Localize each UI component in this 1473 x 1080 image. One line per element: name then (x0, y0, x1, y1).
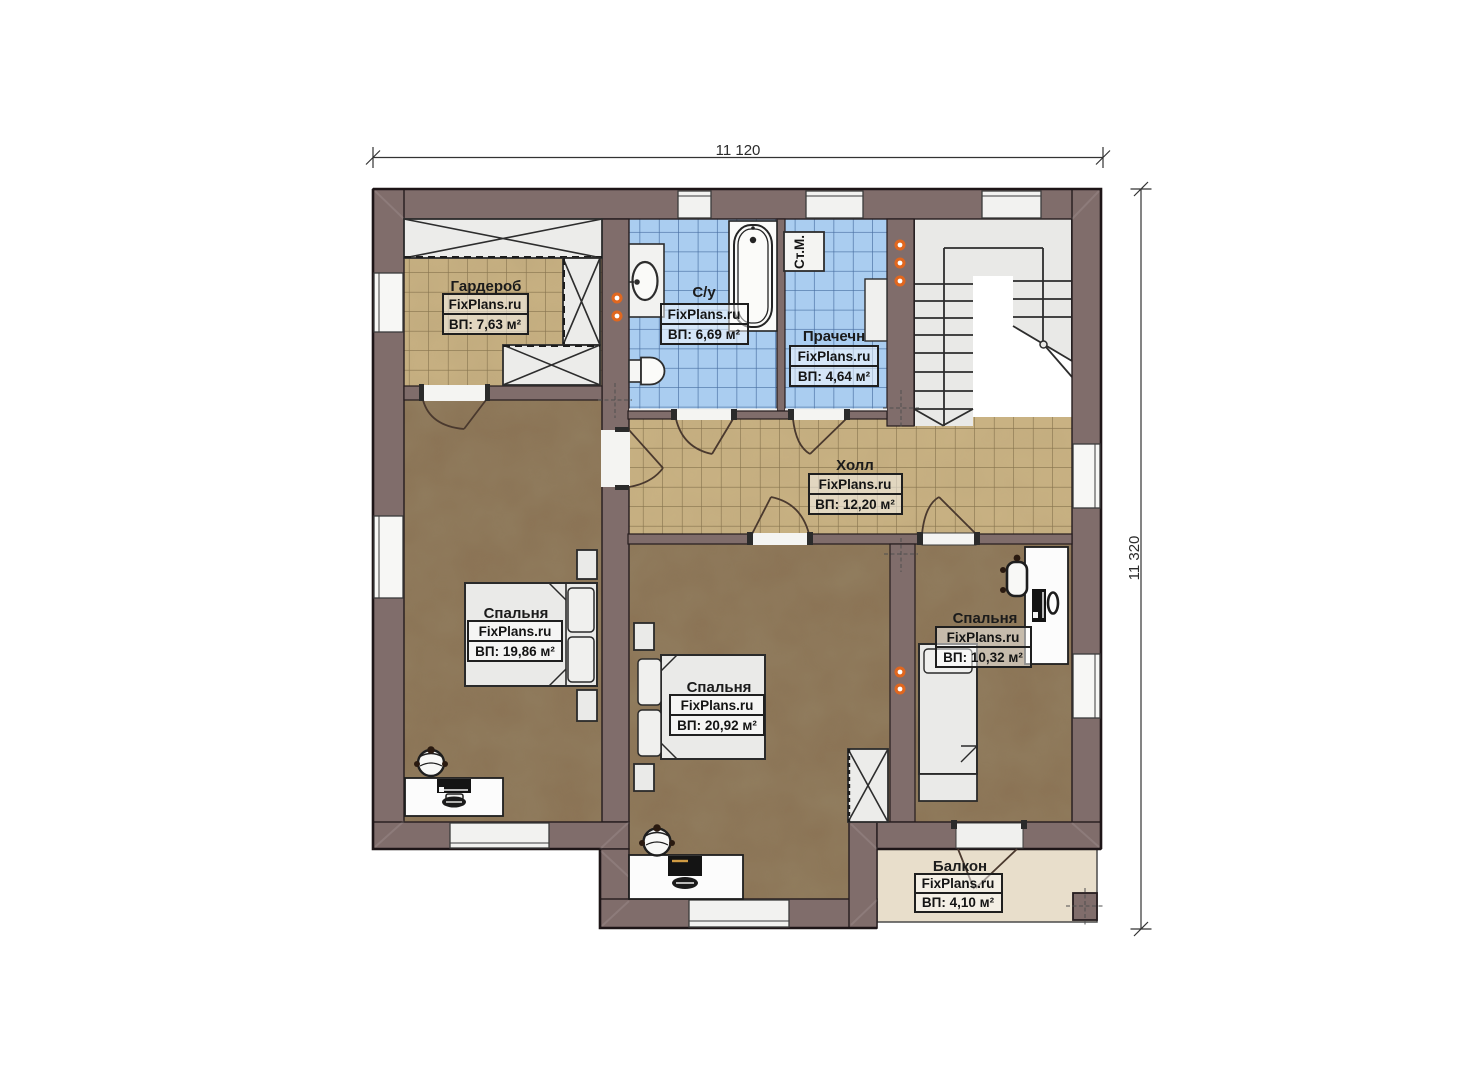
svg-text:FixPlans.ru: FixPlans.ru (681, 698, 754, 713)
svg-text:Спальня: Спальня (953, 610, 1018, 627)
svg-text:FixPlans.ru: FixPlans.ru (449, 297, 522, 312)
svg-text:Ст.М.: Ст.М. (792, 235, 807, 269)
svg-text:Спальня: Спальня (484, 605, 549, 622)
svg-text:11 320: 11 320 (1126, 536, 1143, 581)
svg-text:Балкон: Балкон (933, 858, 987, 875)
svg-text:ВП: 10,32 м²: ВП: 10,32 м² (943, 650, 1023, 665)
svg-text:Гардероб: Гардероб (451, 278, 522, 295)
svg-text:11 120: 11 120 (716, 142, 761, 159)
svg-text:ВП: 19,86 м²: ВП: 19,86 м² (475, 644, 555, 659)
svg-text:FixPlans.ru: FixPlans.ru (922, 876, 995, 891)
svg-text:FixPlans.ru: FixPlans.ru (819, 477, 892, 492)
svg-text:ВП: 4,64 м²: ВП: 4,64 м² (798, 369, 871, 384)
svg-text:ВП: 12,20 м²: ВП: 12,20 м² (815, 497, 895, 512)
svg-text:Холл: Холл (836, 457, 874, 474)
svg-text:С/у: С/у (692, 284, 716, 301)
svg-text:FixPlans.ru: FixPlans.ru (798, 349, 871, 364)
svg-text:ВП: 4,10 м²: ВП: 4,10 м² (922, 895, 995, 910)
svg-text:ВП: 7,63 м²: ВП: 7,63 м² (449, 317, 522, 332)
svg-text:FixPlans.ru: FixPlans.ru (947, 630, 1020, 645)
svg-text:FixPlans.ru: FixPlans.ru (668, 307, 741, 322)
svg-text:Прачечн: Прачечн (803, 328, 865, 345)
svg-text:ВП: 20,92 м²: ВП: 20,92 м² (677, 718, 757, 733)
svg-text:Спальня: Спальня (687, 679, 752, 696)
svg-text:ВП: 6,69 м²: ВП: 6,69 м² (668, 327, 741, 342)
svg-text:FixPlans.ru: FixPlans.ru (479, 624, 552, 639)
